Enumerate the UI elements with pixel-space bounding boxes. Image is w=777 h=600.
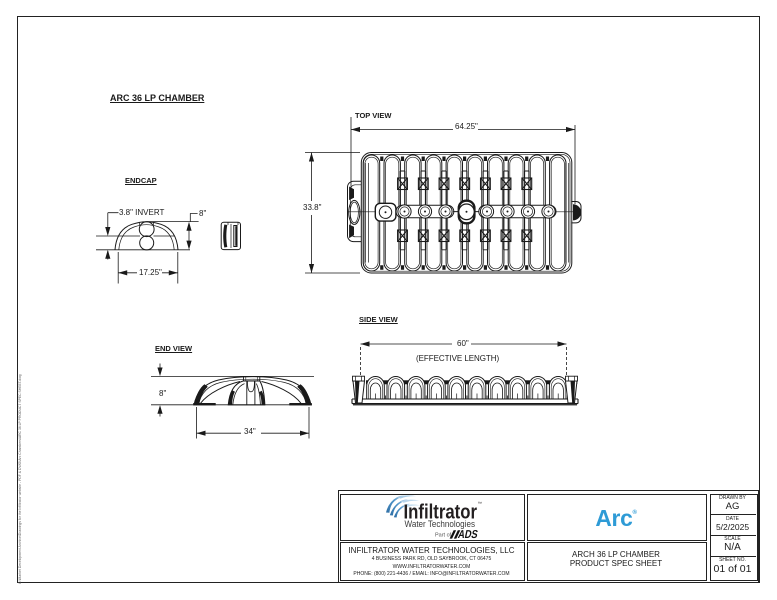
svg-text:™: ™ [478, 501, 483, 506]
svg-text:ADS: ADS [457, 528, 479, 540]
svg-text:Part of: Part of [435, 532, 452, 538]
